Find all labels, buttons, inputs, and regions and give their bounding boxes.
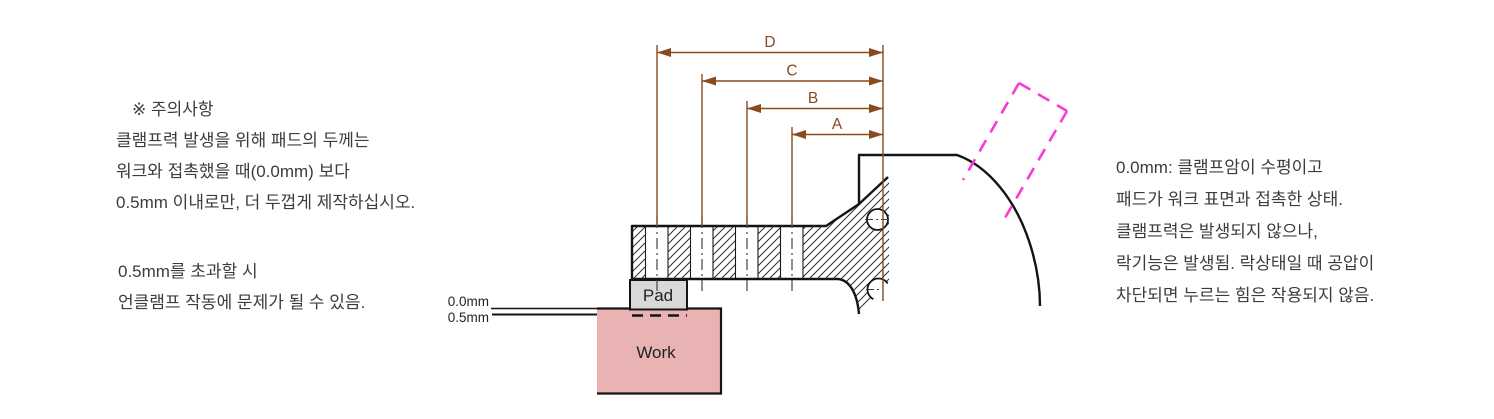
offset-half-label: 0.5mm: [448, 310, 489, 325]
pad-label: Pad: [643, 286, 673, 305]
dimension-label-c: C: [786, 63, 797, 80]
dimension-arrowheads: [657, 48, 883, 139]
dimension-label-b: B: [808, 90, 818, 107]
clamp-pad-instruction-diagram: ※ 주의사항 클램프력 발생을 위해 패드의 두께는 워크와 접촉했을 때(0.…: [0, 0, 1494, 419]
work-label: Work: [636, 343, 676, 362]
dimension-lines: [657, 53, 883, 135]
offset-zero-label: 0.0mm: [448, 294, 489, 309]
phantom-arm-position: [963, 83, 1067, 223]
dimension-label-a: A: [832, 116, 843, 133]
clamp-arm-cad-drawing: D C B A 0.0mm 0.5mm Pad Work: [0, 0, 1494, 419]
dimension-label-d: D: [764, 34, 775, 51]
